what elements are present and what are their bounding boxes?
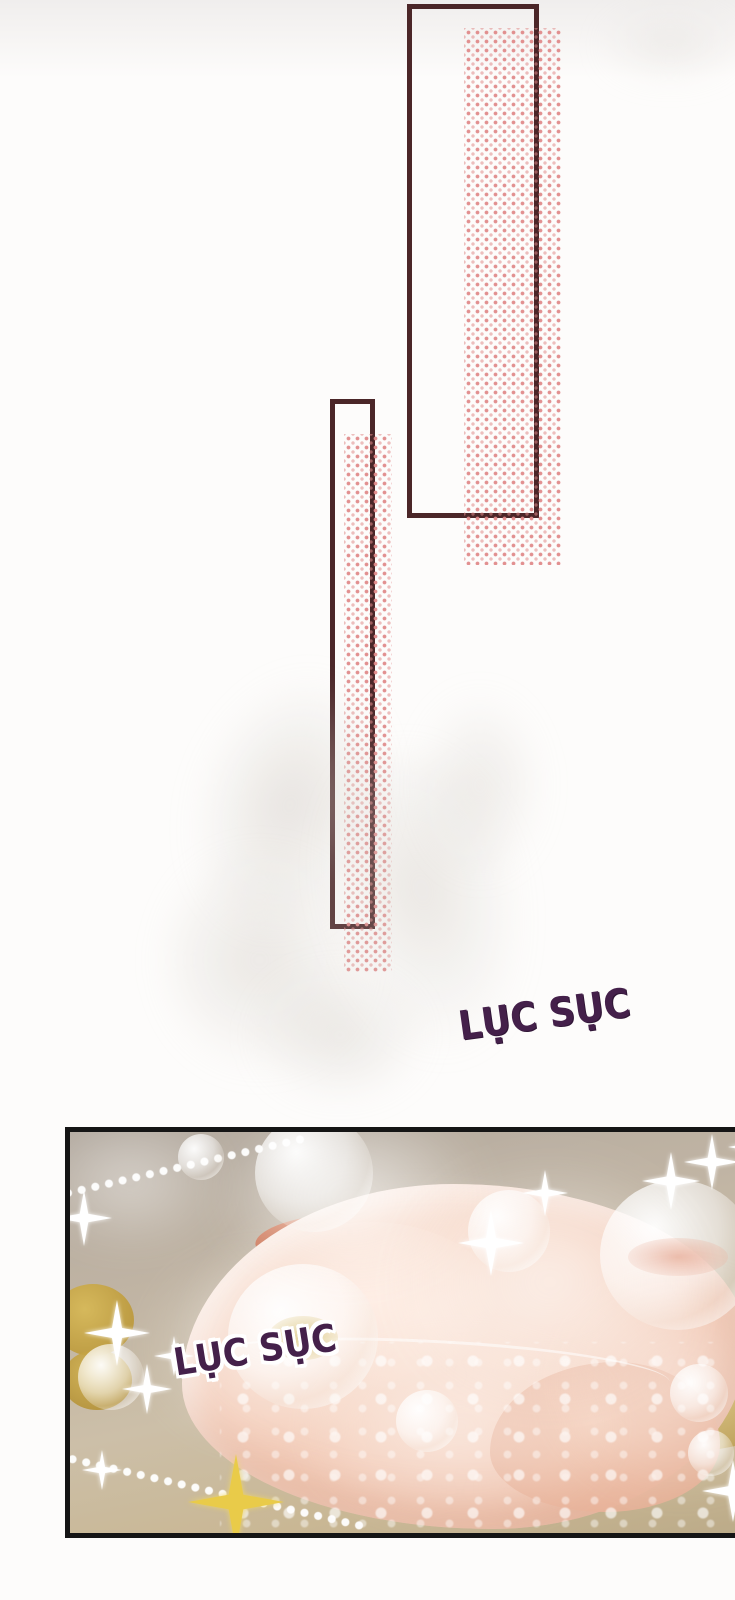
halftone-band-right <box>464 28 561 565</box>
smoke-wisp <box>600 10 735 80</box>
gold-sparkle-icon <box>188 1454 284 1538</box>
sparkle-icon <box>458 1210 524 1276</box>
food-panel: LỤC SỤC <box>65 1127 735 1538</box>
sparkle-icon <box>65 1190 112 1246</box>
sparkle-icon <box>522 1170 568 1216</box>
sparkle-icon <box>84 1300 150 1366</box>
steam-cloud <box>290 1322 630 1532</box>
sparkle-icon <box>702 1460 735 1522</box>
smoke-wisp <box>415 690 545 880</box>
smoke-wisp <box>250 965 430 1105</box>
comic-page: LỤC SỤC <box>0 0 735 1600</box>
sparkle-icon <box>728 1127 735 1170</box>
sparkle-icon <box>82 1450 122 1490</box>
